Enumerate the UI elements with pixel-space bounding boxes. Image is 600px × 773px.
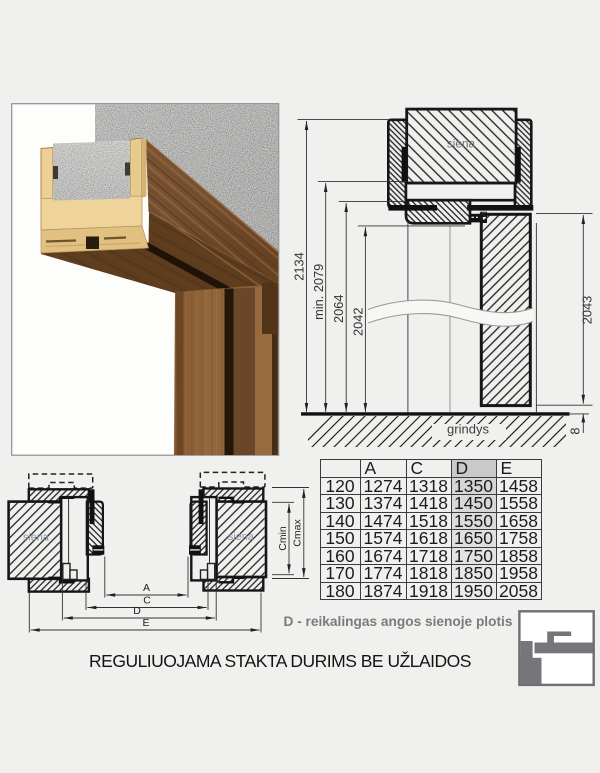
- svg-text:2064: 2064: [331, 294, 346, 322]
- svg-text:E: E: [142, 617, 149, 629]
- svg-text:Cmin: Cmin: [277, 526, 289, 551]
- svg-text:min. 2079: min. 2079: [311, 264, 326, 320]
- svg-text:2043: 2043: [579, 296, 594, 324]
- svg-text:2134: 2134: [292, 252, 307, 280]
- svg-text:2042: 2042: [350, 307, 365, 335]
- svg-text:siena: siena: [23, 532, 49, 544]
- svg-text:siena: siena: [228, 531, 254, 543]
- svg-text:siena: siena: [447, 137, 476, 151]
- svg-text:grindys: grindys: [447, 422, 489, 437]
- svg-text:A: A: [143, 582, 150, 594]
- svg-text:C: C: [143, 595, 151, 607]
- svg-text:Cmax: Cmax: [292, 519, 304, 547]
- svg-text:D: D: [133, 605, 141, 617]
- svg-text:8: 8: [568, 427, 583, 434]
